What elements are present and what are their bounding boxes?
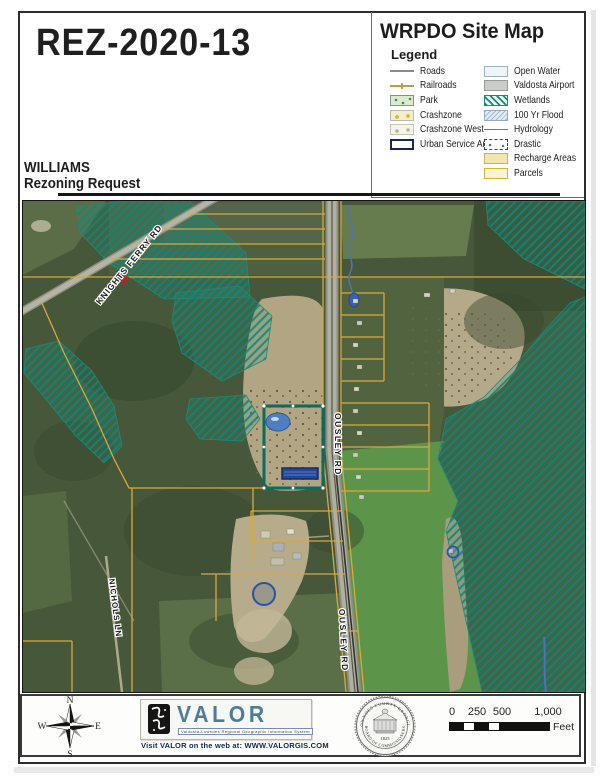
- airport-swatch: [484, 80, 508, 91]
- valor-wordmark: VALOR: [177, 701, 268, 728]
- legend-panel-divider: [371, 12, 372, 198]
- scan-shadow-bottom: [14, 767, 594, 773]
- legend-item-valdosta-airport: Valdosta Airport: [484, 79, 588, 94]
- park-swatch: [390, 95, 414, 106]
- wetlands-swatch: [484, 95, 508, 106]
- legend-item-recharge-areas: Recharge Areas: [484, 152, 588, 167]
- recharge-swatch: [484, 153, 508, 164]
- scale-unit-label: Feet: [553, 721, 574, 733]
- east-pond: [448, 547, 459, 558]
- header-rule: [58, 193, 560, 196]
- legend-label: Drastic: [514, 139, 541, 150]
- legend-item-100yr-flood: 100 Yr Flood: [484, 108, 588, 123]
- roads-line-swatch: [390, 66, 414, 77]
- legend-label: Hydrology: [514, 124, 553, 135]
- open-water-swatch: [484, 66, 508, 77]
- scale-tick-0: 0: [449, 706, 455, 718]
- valor-tagline: Valdosta-Lowndes Regional Geographic Inf…: [178, 728, 313, 735]
- legend-label: Parcels: [514, 168, 543, 179]
- compass-north-label: N: [67, 696, 74, 706]
- county-seal: LOWNDES COUNTY GEORGIA BOARD OF COMMISSI…: [352, 694, 418, 758]
- legend-label: 100 Yr Flood: [514, 110, 563, 121]
- hydrology-line-swatch: [484, 124, 508, 135]
- legend-label: Wetlands: [514, 95, 550, 106]
- legend-title: Legend: [391, 47, 437, 62]
- farm-pond: [253, 583, 275, 605]
- parcels-swatch: [484, 168, 508, 179]
- compass-rose: N S E W: [38, 696, 102, 758]
- scalebar: [449, 722, 550, 731]
- legend-label: Crashzone: [420, 110, 462, 121]
- seal-year: 1825: [381, 736, 391, 741]
- subject-pond: [266, 413, 290, 431]
- map-title: WRPDO Site Map: [380, 20, 544, 44]
- compass-west-label: W: [38, 722, 47, 732]
- legend-label: Open Water: [514, 66, 560, 77]
- applicant-name: WILLIAMS: [24, 160, 90, 176]
- legend-item-open-water: Open Water: [484, 64, 588, 79]
- valor-web-line: Visit VALOR on the web at: WWW.VALORGIS.…: [141, 741, 329, 750]
- compass-east-label: E: [95, 722, 101, 732]
- case-number-title: REZ-2020-13: [36, 22, 251, 65]
- aerial-site-map: KNIGHTS FERRY RD OUSLEY RD OUSLEY RD NIC…: [22, 200, 586, 693]
- request-type: Rezoning Request: [24, 176, 140, 192]
- scale-tick-250: 250: [468, 706, 486, 718]
- legend-panel-bottom-border: [371, 197, 584, 198]
- legend-item-drastic: Drastic: [484, 137, 588, 152]
- legend-label: Railroads: [420, 80, 457, 91]
- crashzone-swatch: [390, 110, 414, 121]
- railroads-line-swatch: [390, 80, 414, 91]
- urban-service-area-swatch: [390, 139, 414, 150]
- compass-south-label: S: [67, 750, 72, 758]
- legend-item-wetlands: Wetlands: [484, 93, 588, 108]
- legend-label: Valdosta Airport: [514, 80, 574, 91]
- scale-tick-500: 500: [493, 706, 511, 718]
- flood-swatch: [484, 110, 508, 121]
- legend-label: Roads: [420, 66, 445, 77]
- legend-label: Recharge Areas: [514, 153, 576, 164]
- scale-tick-1000: 1,000: [534, 706, 562, 718]
- legend-label: Crashzone West: [420, 124, 484, 135]
- scan-shadow-right: [591, 10, 596, 766]
- subject-structure: [282, 468, 318, 479]
- ousley-rd-label: OUSLEY RD: [333, 413, 343, 476]
- crashzone-west-swatch: [390, 124, 414, 135]
- site-map-page: REZ-2020-13 WRPDO Site Map Legend Roads …: [0, 0, 600, 777]
- legend-label: Park: [420, 95, 438, 106]
- valor-logo: VALOR Valdosta-Lowndes Regional Geograph…: [140, 699, 312, 740]
- valor-icon: [148, 704, 170, 734]
- legend-item-hydrology: Hydrology: [484, 122, 588, 137]
- drastic-swatch: [484, 139, 508, 150]
- legend-item-parcels: Parcels: [484, 166, 588, 181]
- legend-right-column: Open Water Valdosta Airport Wetlands 100…: [484, 64, 588, 181]
